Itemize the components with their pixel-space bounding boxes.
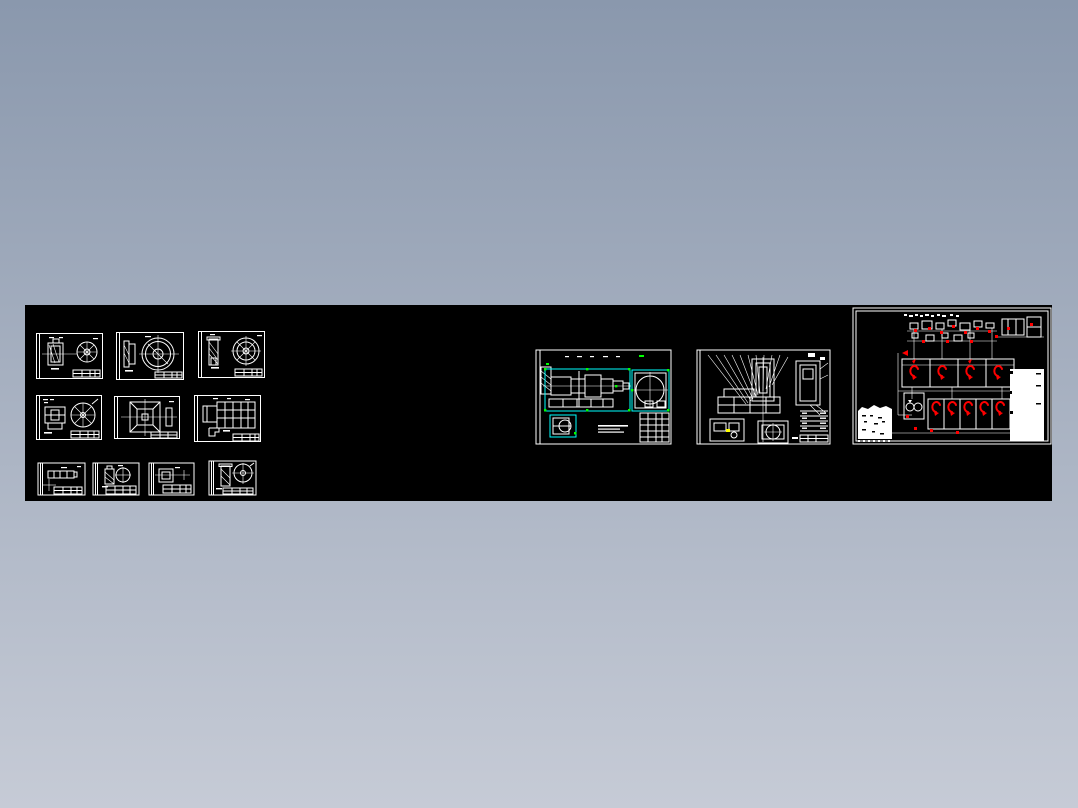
sheet-graphic xyxy=(35,394,103,441)
fixture-callout-drawing[interactable] xyxy=(696,349,831,445)
assembly-graphic xyxy=(535,349,672,445)
cad-model-space-canvas[interactable] xyxy=(25,305,1052,501)
drawing-sheet-r3c1[interactable] xyxy=(37,462,86,496)
drawing-sheet-r3c2[interactable] xyxy=(92,462,140,496)
drawing-sheet-r2c2[interactable] xyxy=(113,395,181,440)
sheet-graphic xyxy=(37,462,86,496)
sheet-graphic xyxy=(197,330,266,379)
sheet-graphic xyxy=(113,395,181,440)
drawing-sheet-r1c1[interactable] xyxy=(35,332,104,380)
hydraulic-schematic-drawing[interactable] xyxy=(852,307,1052,445)
drawing-sheet-r1c2[interactable] xyxy=(115,331,185,381)
sheet-graphic xyxy=(193,394,262,443)
drawing-sheet-r3c4[interactable] xyxy=(208,460,257,496)
sheet-graphic xyxy=(148,462,195,496)
sheet-graphic xyxy=(35,332,104,380)
drawing-sheet-r2c3[interactable] xyxy=(193,394,262,443)
drawing-sheet-r3c3[interactable] xyxy=(148,462,195,496)
drawing-sheet-r1c3[interactable] xyxy=(197,330,266,379)
drawing-sheet-r2c1[interactable] xyxy=(35,394,103,441)
schematic-graphic xyxy=(852,307,1052,445)
application-background xyxy=(0,0,1078,808)
sheet-graphic xyxy=(115,331,185,381)
fixture-graphic xyxy=(696,349,831,445)
assembly-drawing-selected[interactable] xyxy=(535,349,672,445)
sheet-graphic xyxy=(92,462,140,496)
sheet-graphic xyxy=(208,460,257,496)
